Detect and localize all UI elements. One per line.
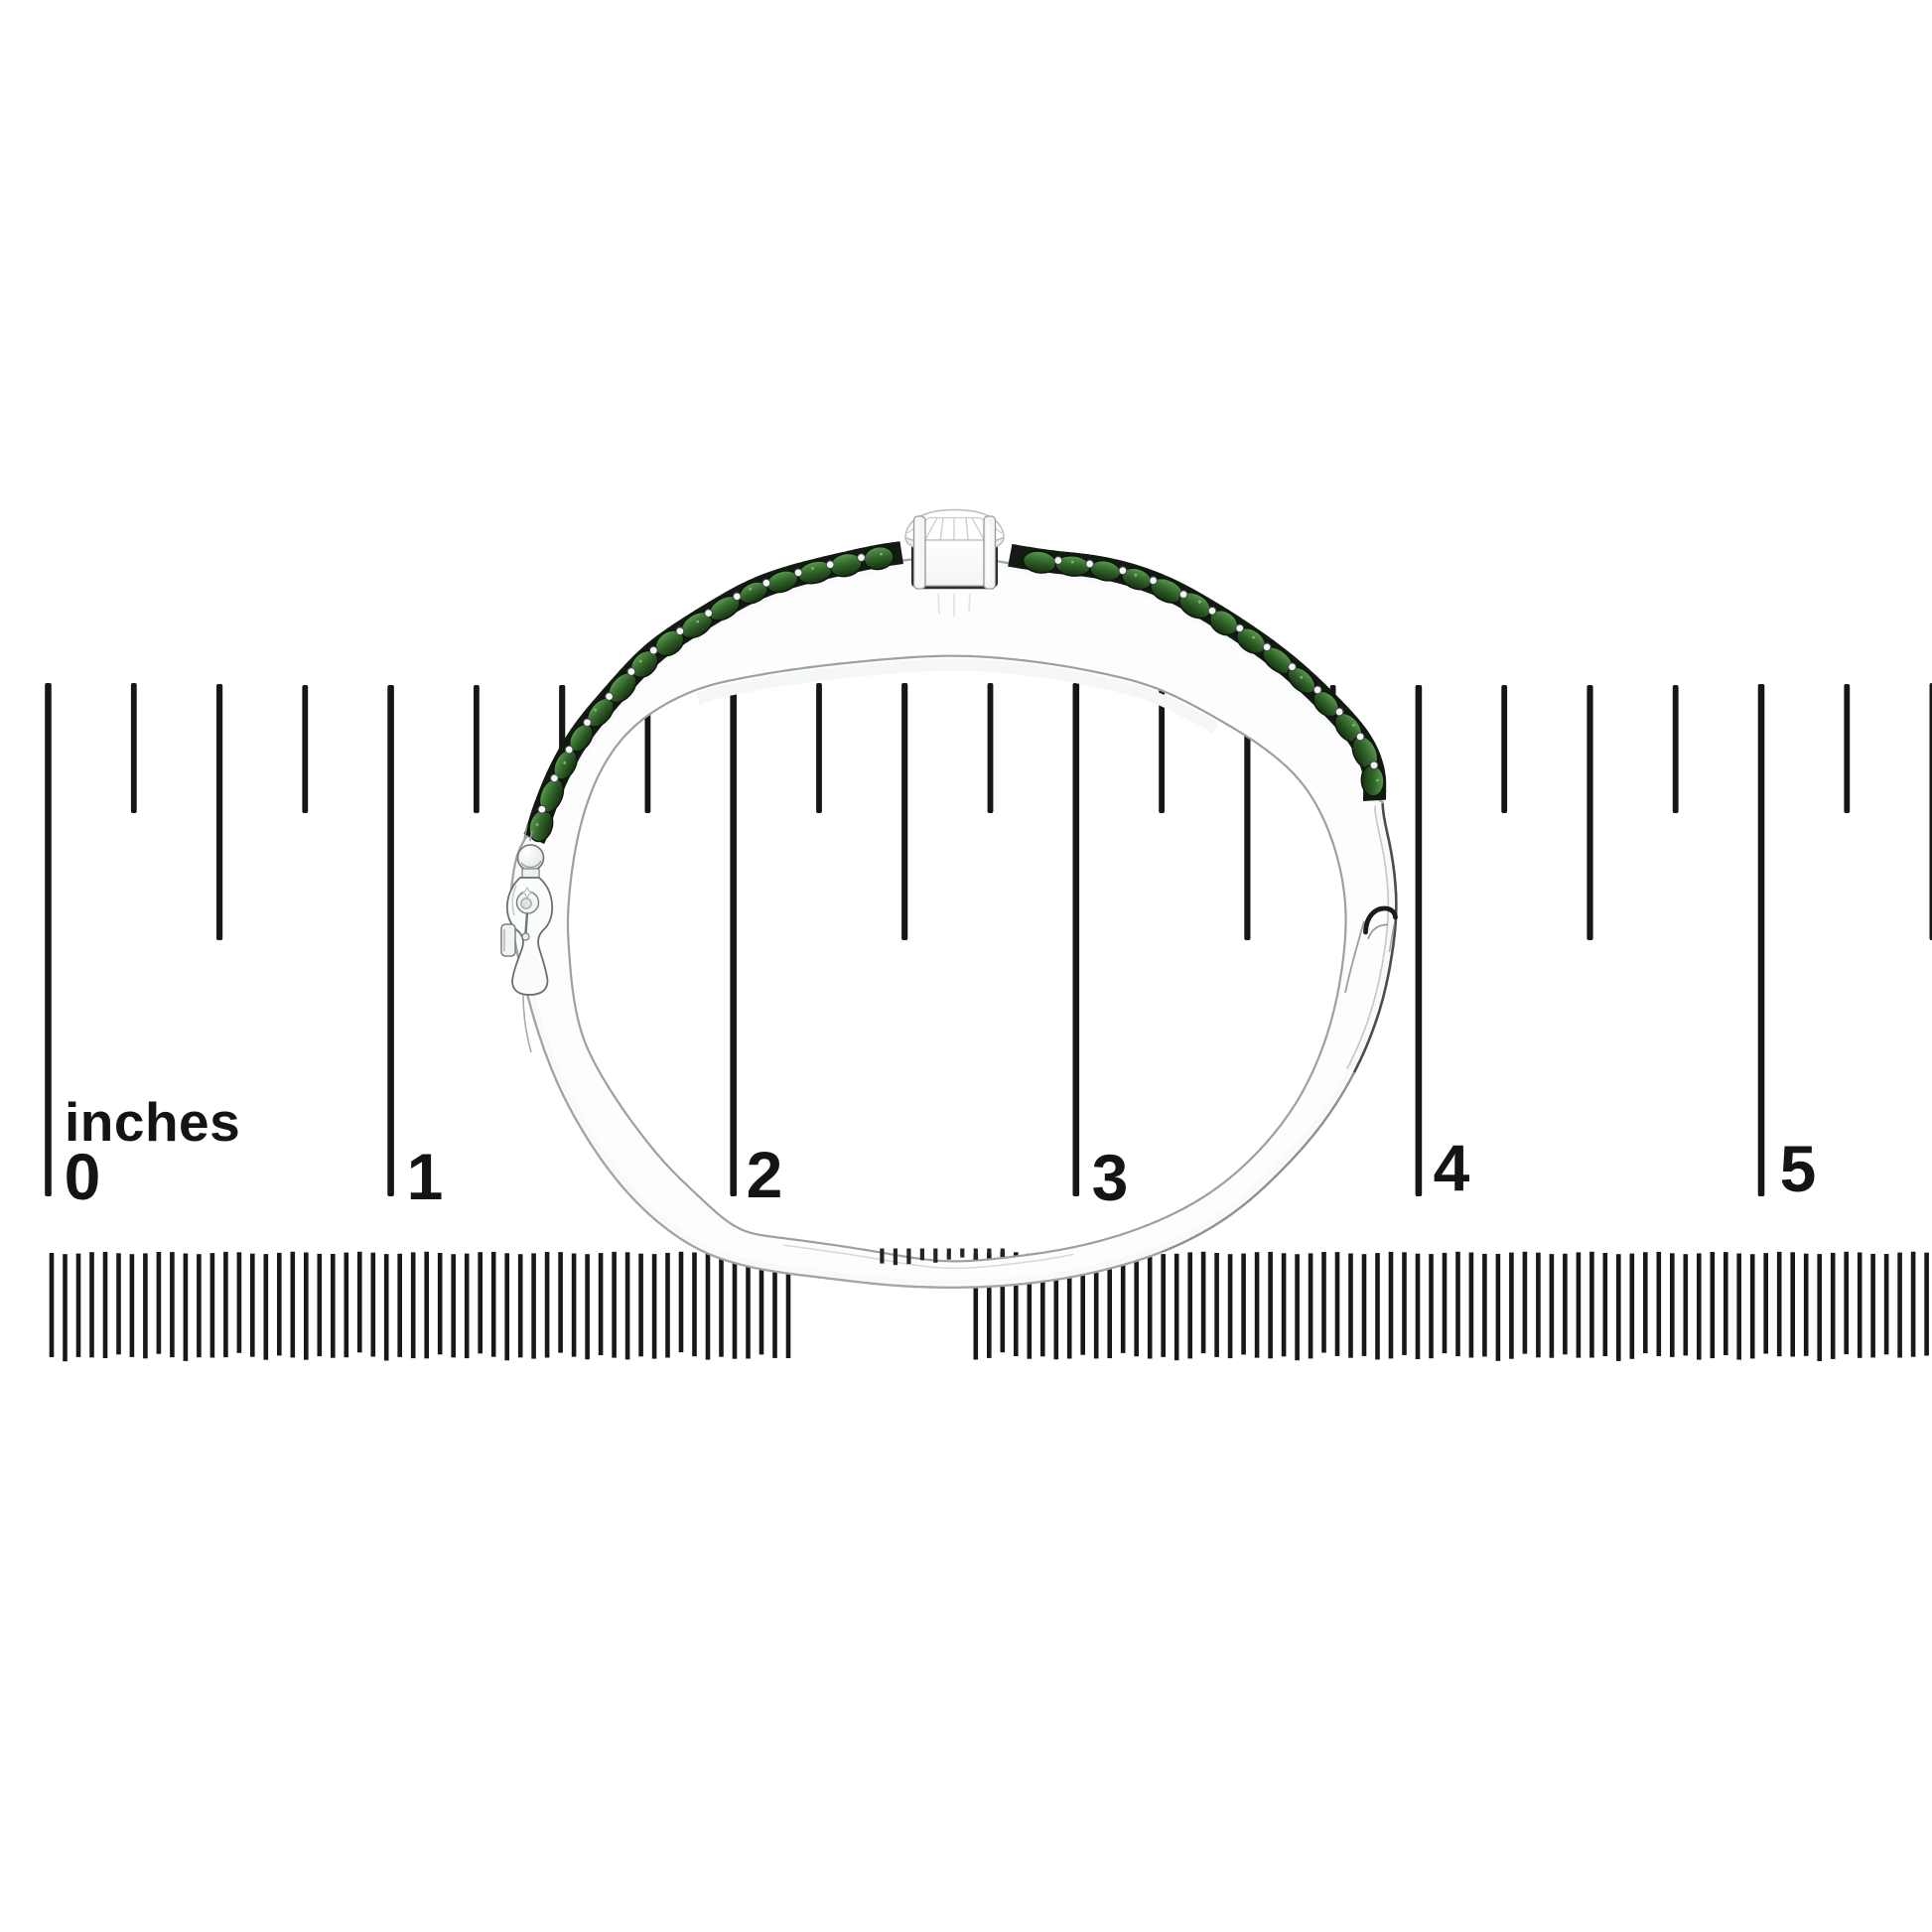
svg-text:4: 4 (1434, 1131, 1470, 1204)
svg-text:5: 5 (1780, 1132, 1817, 1205)
svg-text:2: 2 (747, 1138, 783, 1211)
svg-text:1: 1 (407, 1140, 444, 1213)
svg-text:3: 3 (1092, 1141, 1129, 1214)
svg-text:0: 0 (65, 1140, 101, 1213)
